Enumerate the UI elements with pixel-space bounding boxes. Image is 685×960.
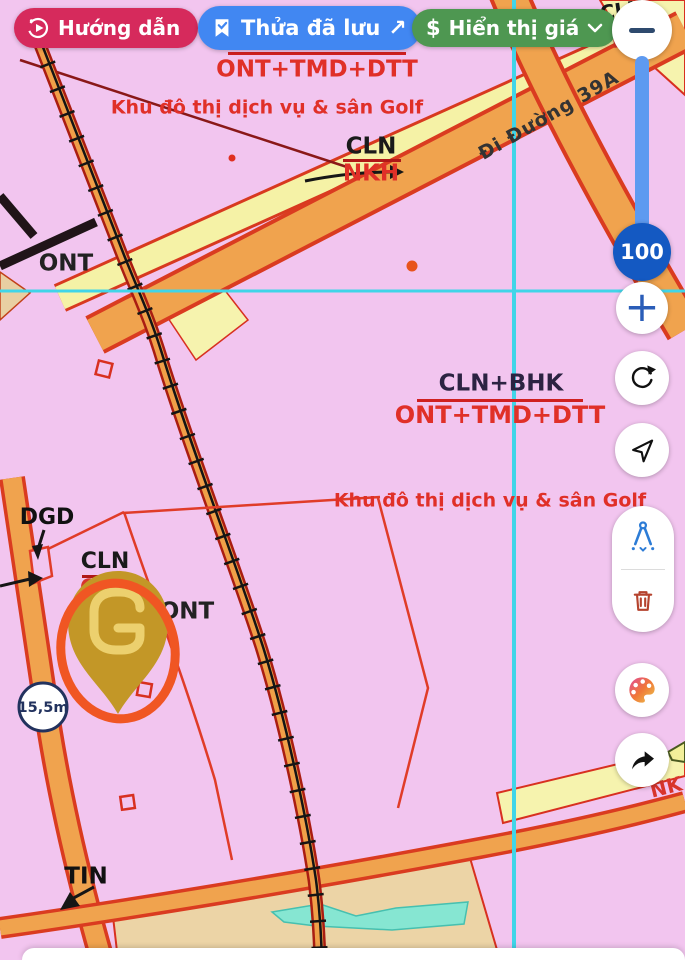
- width-marker: 15,5m: [18, 683, 69, 731]
- zoom-out-button[interactable]: [612, 0, 672, 60]
- map[interactable]: ONT+TMD+DTT Khu đô thị dịch vụ & sân Gol…: [0, 0, 685, 960]
- bookmark-icon: [211, 17, 233, 39]
- navigation-arrow-icon: [625, 433, 659, 467]
- zoom-in-button[interactable]: +: [616, 282, 668, 334]
- plus-icon: +: [624, 282, 659, 331]
- show-price-button[interactable]: $ Hiển thị giá: [412, 9, 617, 47]
- measure-button[interactable]: [612, 506, 674, 569]
- style-button[interactable]: [615, 663, 669, 717]
- zoom-slider[interactable]: [635, 56, 649, 232]
- refresh-icon: [624, 360, 660, 396]
- map-overlay: 15,5m: [0, 0, 685, 960]
- refresh-button[interactable]: [615, 351, 669, 405]
- dollar-icon: $: [426, 16, 441, 40]
- zoom-level-value: 100: [620, 240, 664, 264]
- chevron-down-icon: [587, 23, 603, 33]
- measure-delete-group: [612, 506, 674, 632]
- minus-icon: [629, 28, 655, 33]
- palette-icon: [623, 671, 661, 709]
- width-marker-text: 15,5m: [18, 700, 69, 716]
- guide-button[interactable]: Hướng dẫn: [14, 8, 198, 48]
- my-location-button[interactable]: [615, 423, 669, 477]
- saved-parcels-button[interactable]: Thửa đã lưu ↗: [198, 6, 421, 50]
- external-arrow-icon: ↗: [388, 16, 406, 41]
- share-button[interactable]: [615, 733, 669, 787]
- tutorial-icon: [26, 16, 50, 40]
- share-icon: [624, 742, 660, 778]
- saved-parcels-label: Thửa đã lưu: [241, 16, 380, 40]
- compass-icon: [623, 517, 663, 557]
- trash-icon: [626, 584, 660, 618]
- show-price-label: Hiển thị giá: [449, 16, 580, 40]
- zoom-level-badge: 100: [613, 223, 671, 281]
- delete-button[interactable]: [612, 570, 674, 633]
- bottom-sheet-handle[interactable]: [22, 948, 685, 960]
- guide-button-label: Hướng dẫn: [58, 16, 180, 40]
